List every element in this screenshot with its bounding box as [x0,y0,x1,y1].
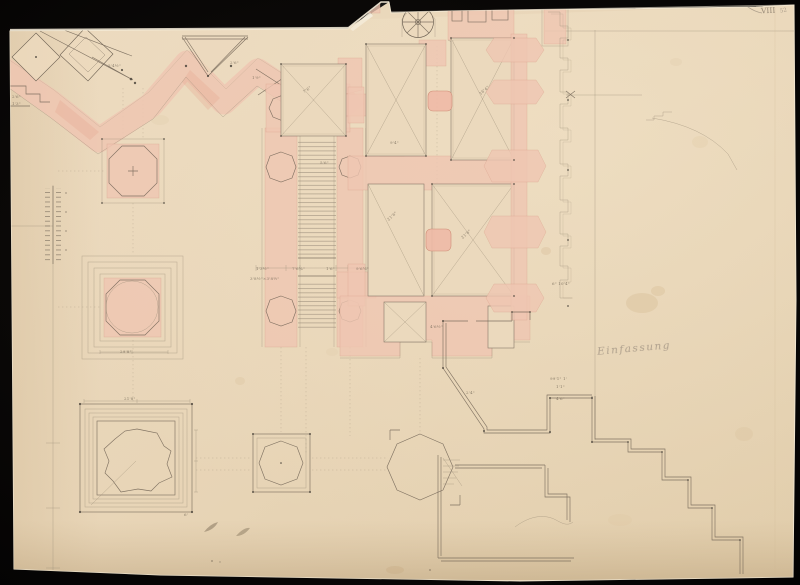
floor-plan-drawing [0,0,800,585]
photograph-background: 5'4½"2'6"1'9"7'6"16'4"9'4"5'6"21'6"21'6"… [0,0,800,585]
pink-pier-box-lower [426,229,451,251]
pink-pier-box-upper [428,91,452,111]
pier-upper-left [102,139,164,203]
